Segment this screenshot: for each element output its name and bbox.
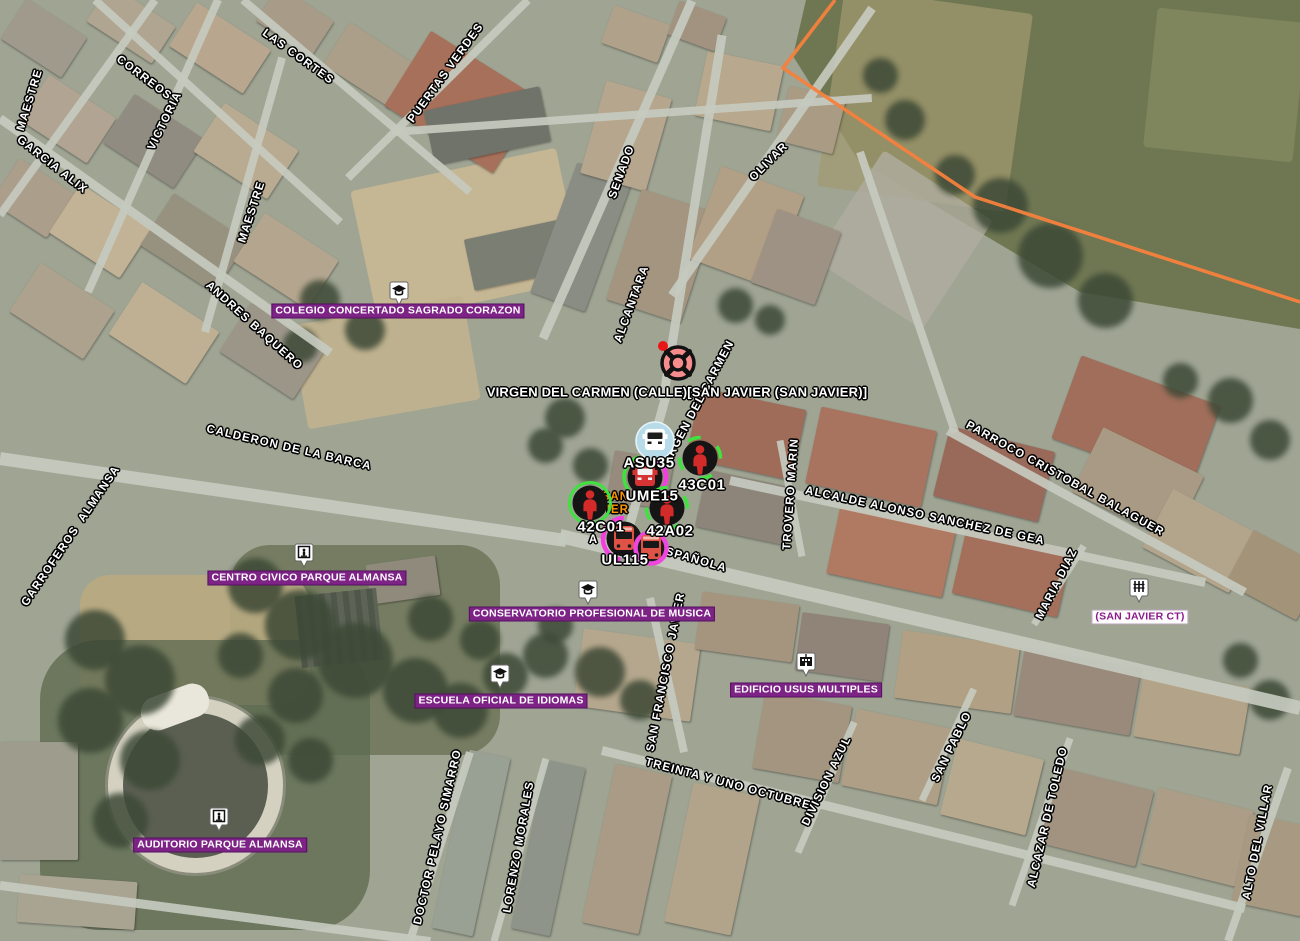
poi-label: ESCUELA OFICIAL DE IDIOMAS (414, 694, 587, 709)
street-label-fragment: A (589, 534, 597, 546)
tree-canopy (218, 633, 263, 678)
poi-pin[interactable] (490, 664, 510, 690)
tree-canopy (573, 448, 608, 483)
tree-canopy (1223, 643, 1258, 678)
poi-label: CONSERVATORIO PROFESIONAL DE MUSICA (469, 607, 715, 622)
graduation-cap-icon (578, 580, 598, 606)
incident-marker[interactable] (650, 335, 706, 391)
unit-label: 42A02 (646, 523, 693, 540)
tree-canopy (528, 428, 563, 463)
monument-icon (209, 807, 229, 833)
poi-pin[interactable] (578, 580, 598, 606)
poi-pin[interactable] (294, 543, 314, 569)
tree-canopy (718, 288, 753, 323)
tree-canopy (885, 100, 925, 140)
unit-marker-43C01[interactable] (676, 434, 724, 482)
building (664, 782, 760, 935)
tree-canopy (755, 305, 785, 335)
building-icon (796, 652, 816, 678)
building (582, 764, 672, 935)
poi-label: COLEGIO CONCERTADO SAGRADO CORAZON (271, 304, 524, 319)
power-tower-icon (1129, 578, 1149, 604)
building (841, 709, 953, 806)
building (0, 742, 78, 860)
tree-canopy (433, 683, 488, 738)
building (694, 591, 799, 662)
road (0, 452, 567, 547)
unit-label: ASU35 (623, 455, 674, 472)
tree-canopy (863, 58, 898, 93)
street-label: CALDERON DE LA BARCA (205, 423, 373, 473)
tree-canopy (1163, 363, 1198, 398)
tree-canopy (288, 738, 333, 783)
graduation-cap-icon (490, 664, 510, 690)
tree-canopy (318, 623, 393, 698)
tree-canopy (268, 668, 323, 723)
poi-label: AUDITORIO PARQUE ALMANSA (133, 838, 307, 853)
tree-canopy (1250, 420, 1290, 460)
person-icon (676, 434, 724, 482)
unit-label: 43C01 (678, 477, 725, 494)
poi-label: (SAN JAVIER CT) (1091, 610, 1188, 625)
poi-pin[interactable] (209, 807, 229, 833)
tree-canopy (973, 178, 1028, 233)
tree-canopy (460, 620, 500, 660)
building (109, 282, 220, 384)
building (1, 0, 88, 78)
tree-canopy (58, 688, 123, 753)
poi-pin[interactable] (1129, 578, 1149, 604)
poi-pin[interactable] (796, 652, 816, 678)
tree-canopy (575, 647, 625, 697)
poi-label: CENTRO CIVICO PARQUE ALMANSA (207, 571, 406, 586)
terrain-patch (1143, 8, 1300, 163)
tree-canopy (935, 155, 975, 195)
monument-icon (294, 543, 314, 569)
unit-label: UL115 (601, 552, 648, 569)
crosshair-target-icon (650, 335, 706, 391)
tree-canopy (408, 596, 453, 641)
tree-canopy (235, 715, 285, 765)
building (601, 5, 671, 63)
map-viewport[interactable]: MAESTRECORREOSVICTORIAGARCIA ALIXLAS COR… (0, 0, 1300, 941)
tree-canopy (120, 730, 180, 790)
incident-label: VIRGEN DEL CARMEN (CALLE)[SAN JAVIER (SA… (487, 385, 868, 400)
unit-label: 42C01 (577, 519, 624, 536)
tree-canopy (1208, 378, 1253, 423)
unit-label: UME15 (625, 488, 678, 505)
poi-label: EDIFICIO USUS MULTIPLES (730, 683, 882, 698)
tree-canopy (1018, 223, 1083, 288)
tree-canopy (1078, 273, 1133, 328)
